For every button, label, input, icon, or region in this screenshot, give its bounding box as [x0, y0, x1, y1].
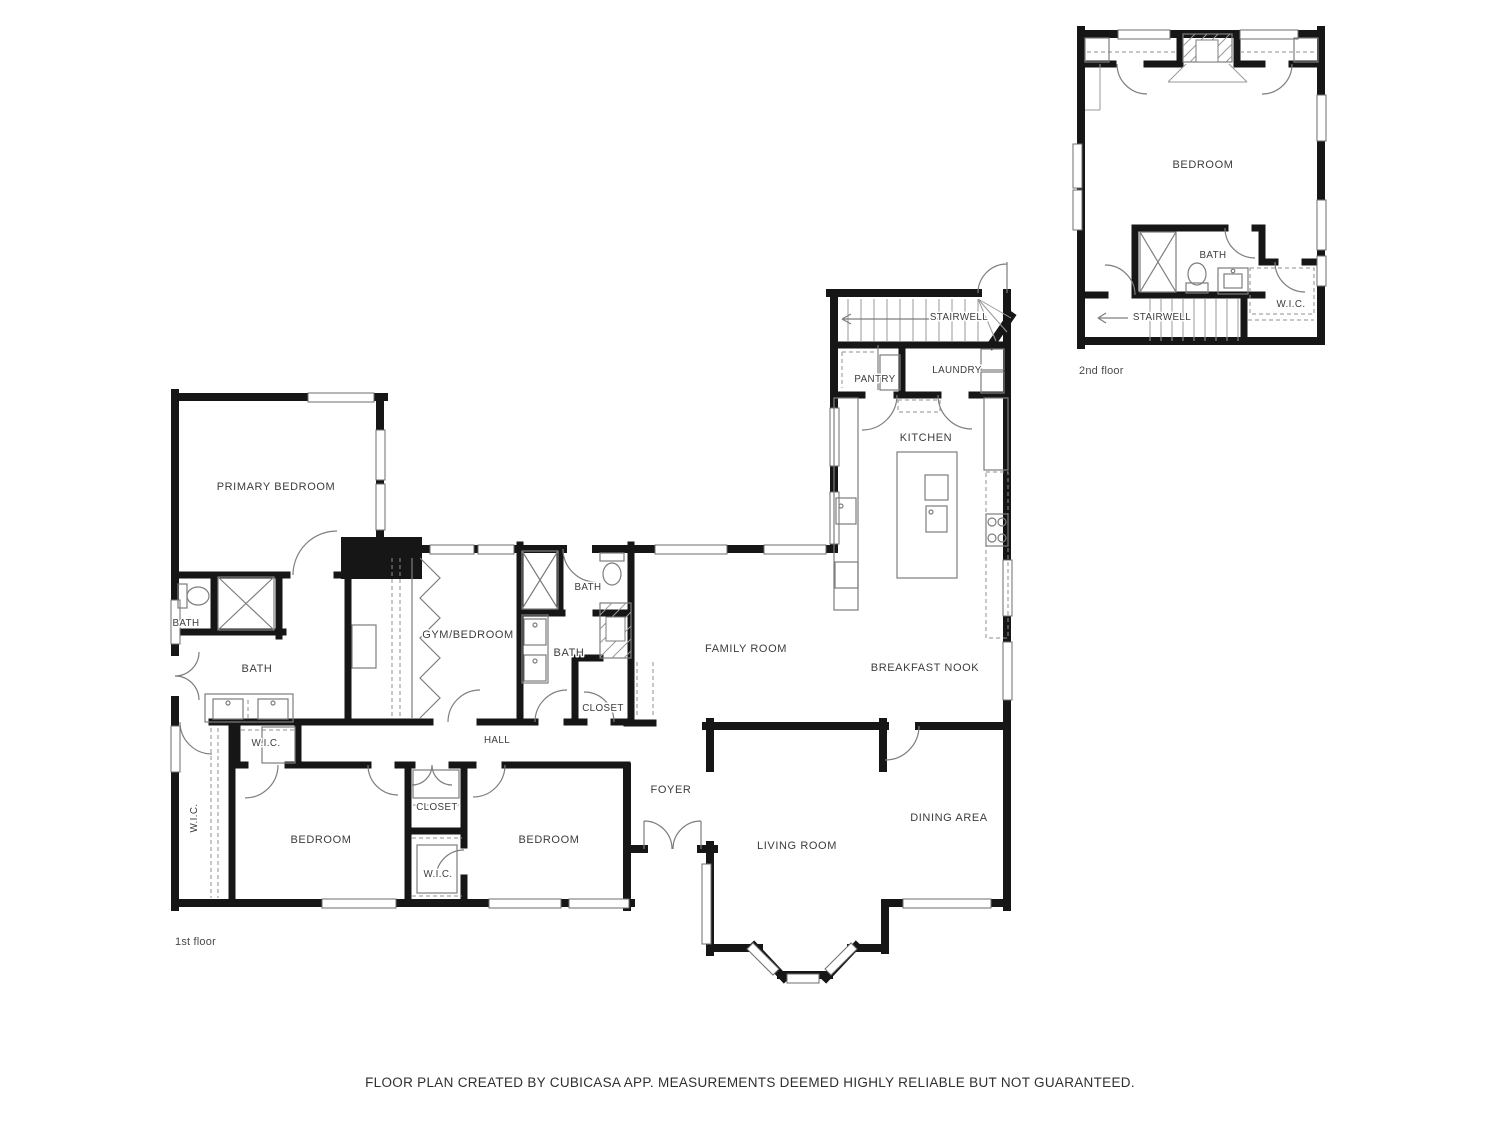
room-label-stairwell-1f: STAIRWELL: [930, 312, 988, 323]
room-label-bath-toilet: BATH: [172, 618, 199, 629]
room-label-pantry: PANTRY: [854, 374, 895, 385]
first-floor-plan: PRIMARY BEDROOM BATH BATH GYM/BEDROOM BA…: [171, 262, 1012, 983]
room-label-wic-small: W.I.C.: [251, 738, 280, 749]
floor-plan-page: PRIMARY BEDROOM BATH BATH GYM/BEDROOM BA…: [0, 0, 1500, 1125]
disclaimer-text: FLOOR PLAN CREATED BY CUBICASA APP. MEAS…: [365, 1075, 1135, 1090]
room-label-foyer: FOYER: [651, 784, 692, 796]
room-label-primary-bedroom: PRIMARY BEDROOM: [217, 481, 336, 493]
second-floor-walls: [1081, 30, 1321, 345]
first-floor-caption: 1st floor: [175, 936, 216, 948]
room-label-bath-2f: BATH: [1199, 250, 1226, 261]
room-label-living-room: LIVING ROOM: [757, 840, 837, 852]
room-label-bedroom-2f: BEDROOM: [1172, 159, 1233, 171]
room-label-dining-area: DINING AREA: [910, 812, 988, 824]
stairwell-arrow-2f-icon: [1098, 313, 1128, 323]
second-floor-windows: [1073, 30, 1326, 286]
room-label-bath-hall: BATH: [554, 647, 585, 659]
second-floor-caption: 2nd floor: [1079, 365, 1124, 377]
room-label-family-room: FAMILY ROOM: [705, 643, 787, 655]
room-label-kitchen: KITCHEN: [900, 432, 952, 444]
room-label-closet-mid: CLOSET: [416, 802, 458, 813]
room-label-wic-strip: W.I.C.: [189, 803, 200, 832]
room-label-laundry: LAUNDRY: [932, 365, 982, 376]
second-floor-plan: BEDROOM BATH W.I.C. STAIRWELL 2nd floor: [1073, 30, 1326, 377]
room-label-wic-2f: W.I.C.: [1276, 299, 1305, 310]
room-label-hall: HALL: [484, 735, 510, 746]
room-label-stairwell-2f: STAIRWELL: [1133, 312, 1191, 323]
room-label-wic-mid: W.I.C.: [423, 869, 452, 880]
room-label-breakfast-nook: BREAKFAST NOOK: [871, 662, 980, 674]
room-label-gym-bedroom: GYM/BEDROOM: [422, 629, 514, 641]
room-label-bedroom-left: BEDROOM: [290, 834, 351, 846]
room-label-closet-hall: CLOSET: [582, 703, 624, 714]
room-label-bath-primary: BATH: [242, 663, 273, 675]
room-label-bath-upper: BATH: [574, 582, 601, 593]
first-floor-fixtures: [178, 345, 1008, 898]
first-floor-doors: [175, 262, 1007, 878]
first-floor-walls: [175, 293, 1011, 978]
room-label-bedroom-right: BEDROOM: [518, 834, 579, 846]
floor-plan-canvas: PRIMARY BEDROOM BATH BATH GYM/BEDROOM BA…: [0, 0, 1500, 1125]
